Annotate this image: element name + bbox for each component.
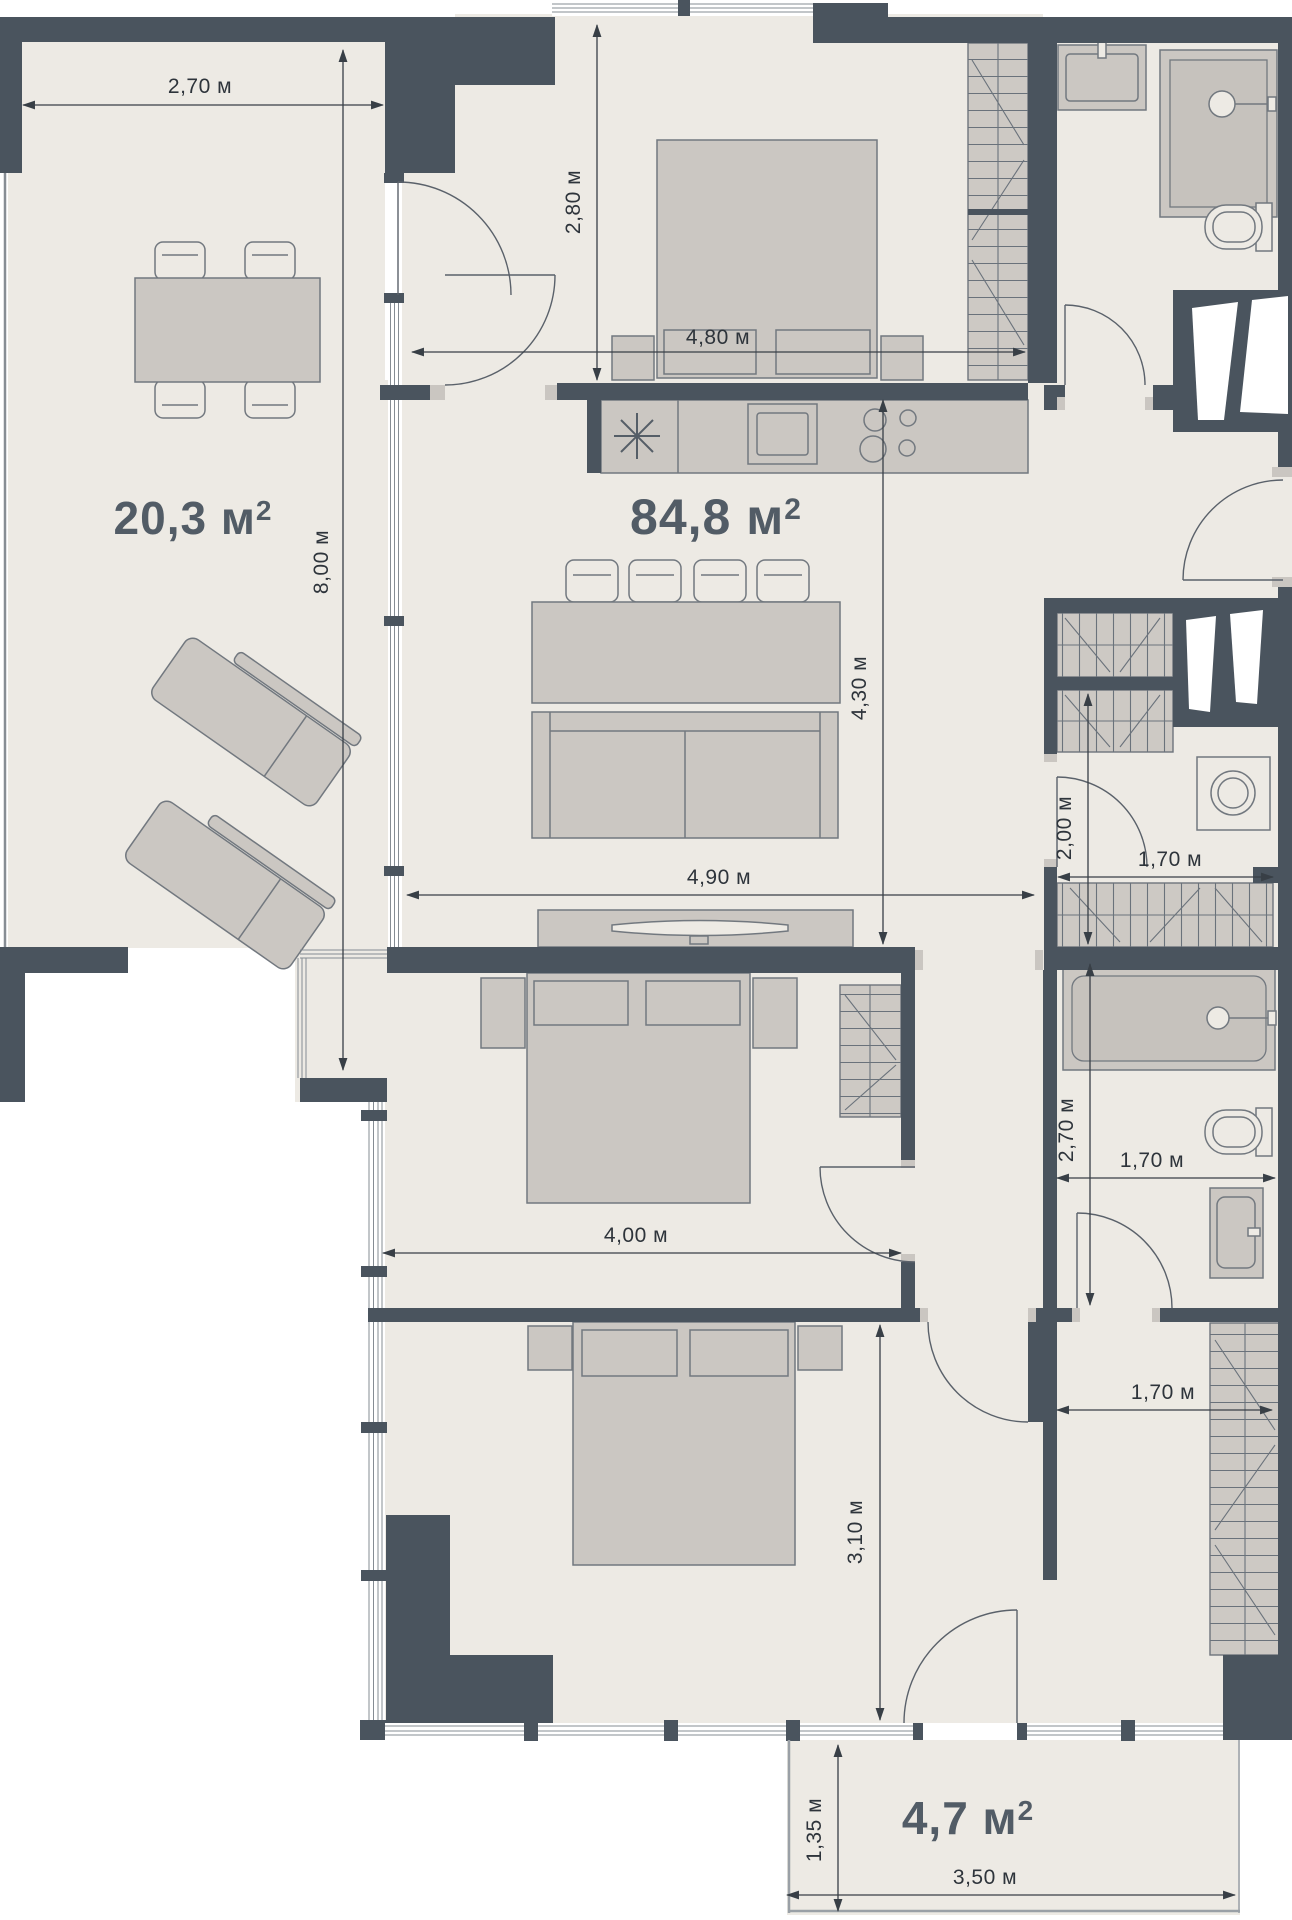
sink-icon [1210, 1188, 1263, 1278]
floor-plan-page: 2,70 м 8,00 м 2,80 м 4,80 м 4,30 м 4,90 … [0, 0, 1292, 1920]
dim-laundry-height: 2,00 м [1053, 796, 1076, 860]
chair [155, 380, 205, 418]
dining-table [532, 602, 840, 703]
area-label-balcony: 4,7 м2 [902, 1792, 1034, 1844]
chair [245, 242, 295, 280]
pillow [690, 1330, 788, 1376]
chair [694, 560, 746, 602]
chair [629, 560, 681, 602]
dim-living-height: 4,30 м [848, 656, 871, 720]
glass-south-facade [385, 1720, 1223, 1741]
dim-terrace-height: 8,00 м [310, 530, 333, 594]
nightstand [798, 1326, 842, 1370]
pillow [646, 981, 740, 1025]
dim-living-width: 4,90 м [687, 866, 751, 889]
washing-machine-icon [1197, 757, 1270, 830]
chair [155, 242, 205, 280]
toilet-icon [1205, 203, 1272, 251]
nightstand [481, 978, 525, 1048]
pillow [534, 981, 628, 1025]
kitchen-counter [601, 400, 1028, 473]
bathtub-icon [1063, 967, 1276, 1070]
bedroom1-furniture [612, 140, 923, 380]
dim-bedroom1-width: 4,80 м [686, 326, 750, 349]
nightstand [753, 978, 797, 1048]
bedroom3-furniture [528, 1322, 842, 1565]
dim-bedroom3-height: 3,10 м [844, 1500, 867, 1564]
sink-icon [1058, 36, 1146, 110]
area-label-living: 84,8 м2 [630, 489, 802, 545]
wardrobe-bedroom1 [968, 43, 1028, 380]
dim-laundry-width: 1,70 м [1138, 848, 1202, 871]
dim-terrace-width: 2,70 м [168, 75, 232, 98]
shower-icon [1160, 50, 1277, 217]
nightstand [881, 336, 923, 380]
pillow [582, 1330, 677, 1376]
floor-plan: 2,70 м 8,00 м 2,80 м 4,80 м 4,30 м 4,90 … [0, 0, 1292, 1920]
area-label-terrace: 20,3 м2 [114, 492, 273, 544]
wardrobe-laundry-2 [1057, 690, 1173, 752]
bedroom2-furniture [481, 973, 797, 1203]
dim-balcony-height: 1,35 м [803, 1798, 826, 1862]
dim-hall-width: 1,70 м [1131, 1381, 1195, 1404]
toilet-icon [1205, 1108, 1272, 1156]
wardrobe-corridor [1210, 1323, 1280, 1655]
nightstand [612, 336, 654, 380]
chair [245, 380, 295, 418]
wardrobe-hall-strip [1057, 883, 1273, 947]
dim-bedroom2-width: 4,00 м [604, 1224, 668, 1247]
chair [566, 560, 618, 602]
dim-balcony-width: 3,50 м [953, 1866, 1017, 1889]
laundry-fixtures [1197, 757, 1270, 830]
nightstand [528, 1326, 572, 1370]
chair [757, 560, 809, 602]
wardrobe-laundry-1 [1057, 613, 1173, 677]
dim-bath-width: 1,70 м [1120, 1149, 1184, 1172]
kitchen [601, 400, 1028, 473]
dim-bath-height: 2,70 м [1055, 1098, 1078, 1162]
dim-bedroom1-height: 2,80 м [562, 170, 585, 234]
wardrobe-bedroom2 [840, 985, 901, 1117]
glass-west-facade [360, 1102, 387, 1740]
sofa [532, 712, 838, 838]
dining-table-terrace [135, 278, 320, 382]
window-bedroom1 [552, 0, 813, 16]
